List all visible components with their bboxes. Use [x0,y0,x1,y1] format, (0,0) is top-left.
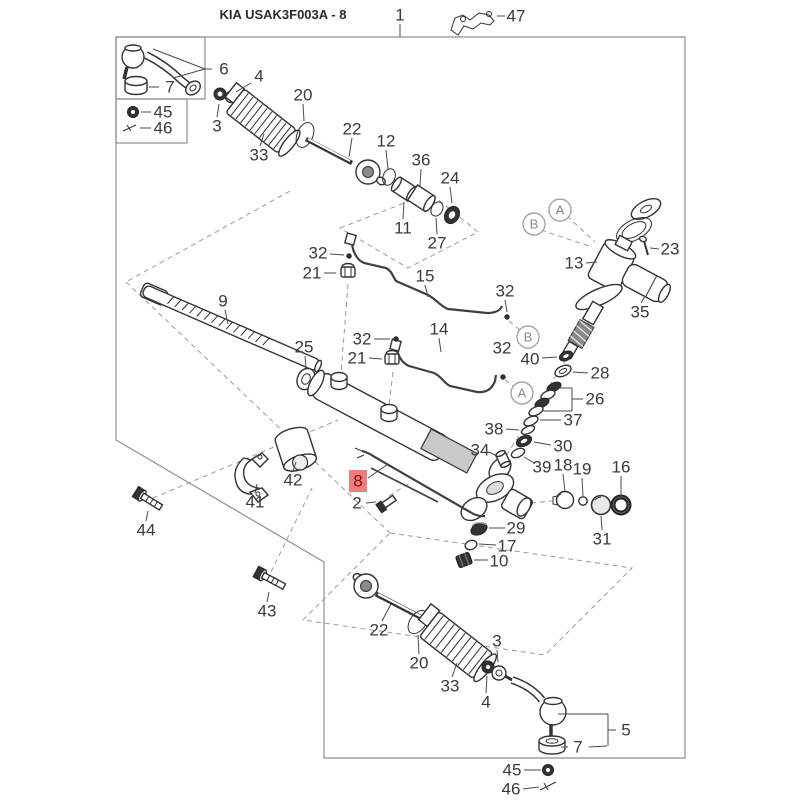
o-rings-26 [528,380,563,418]
callout-33-52[interactable]: 33 [441,677,460,696]
callout-layer: 1476745463420332212362411273221153214322… [137,6,680,799]
callout-46-58[interactable]: 46 [502,780,521,799]
callout-33-9[interactable]: 33 [250,146,269,165]
callout-7-3[interactable]: 7 [165,78,174,97]
callout-31-40[interactable]: 31 [593,530,612,549]
bolt-2 [376,494,397,513]
callout-23-26[interactable]: 23 [661,240,680,259]
callout-15-18[interactable]: 15 [416,267,435,286]
callout-13-25[interactable]: 13 [565,254,584,273]
castle-nut-upper-7 [125,77,147,95]
o-ring-20-upper [293,120,318,150]
parts-diagram-page: KIA USAK3F003A - 8 ABBA 1476745463420332… [0,0,800,800]
split-pin-46-lower [540,782,556,790]
callout-32-21[interactable]: 32 [353,330,372,349]
split-pin-46-upper [123,125,136,131]
housing-boss-2 [381,405,397,422]
castle-nut-lower-7 [539,736,565,754]
callout-14-20[interactable]: 14 [430,320,449,339]
callout-5-55[interactable]: 5 [621,721,630,740]
nut-45-lower [543,765,554,776]
callout-37-32[interactable]: 37 [564,411,583,430]
callout-11-14[interactable]: 11 [394,219,412,238]
svg-text:A: A [518,386,527,401]
ref-letter-B-1: B [523,213,545,235]
bolt-43 [253,566,287,592]
washer-3-upper [214,88,226,100]
callout-22-10[interactable]: 22 [343,120,362,139]
svg-text:B: B [524,330,533,345]
ring-39 [510,446,526,459]
callout-21-17[interactable]: 21 [303,264,322,283]
seal-30 [515,433,534,449]
callout-38-33[interactable]: 38 [485,420,504,439]
callout-16-39[interactable]: 16 [612,458,631,477]
solenoid-35 [620,262,674,306]
callout-20-8[interactable]: 20 [294,86,313,105]
nut-45-upper [128,107,139,118]
return-pipe-14 [390,337,505,392]
callout-29-41[interactable]: 29 [507,519,526,538]
callout-1-0[interactable]: 1 [395,6,404,25]
callout-32-19[interactable]: 32 [496,282,515,301]
callout-43-47[interactable]: 43 [258,602,277,621]
valve-assembly-13 [562,194,673,358]
callout-39-36[interactable]: 39 [533,458,552,477]
callout-20-51[interactable]: 20 [410,654,429,673]
ring-19 [579,497,587,505]
mount-bushing-42 [273,424,318,475]
callout-47-1[interactable]: 47 [507,7,526,26]
callout-25-24[interactable]: 25 [295,338,314,357]
steering-gear-housing [305,368,534,525]
callout-46-5[interactable]: 46 [154,119,173,138]
exploded-parts-diagram: KIA USAK3F003A - 8 ABBA 1476745463420332… [0,0,800,800]
callout-12-11[interactable]: 12 [377,132,396,151]
pipe-fitting-21b [385,351,399,365]
ref-letter-A-3: A [511,382,533,404]
bearing-24 [441,204,462,227]
callout-34-35[interactable]: 34 [471,441,490,460]
cap-29 [469,520,489,537]
callout-42-44[interactable]: 42 [284,471,303,490]
callout-8-48[interactable]: 8 [353,472,362,491]
housing-boss-1 [331,373,347,390]
callout-6-2[interactable]: 6 [219,60,228,79]
ring-38 [520,424,536,436]
rack-bar-9 [139,282,323,373]
callout-35-27[interactable]: 35 [631,303,650,322]
inner-tie-rod-lower-22 [352,572,426,620]
callout-24-13[interactable]: 24 [441,169,460,188]
callout-28-30[interactable]: 28 [591,364,610,383]
callout-44-46[interactable]: 44 [137,521,156,540]
yoke-31 [592,496,611,515]
callout-32-16[interactable]: 32 [309,244,328,263]
screw-23 [639,235,648,255]
callout-32-28[interactable]: 32 [493,339,512,358]
callout-36-12[interactable]: 36 [412,151,431,170]
callout-21-22[interactable]: 21 [348,349,367,368]
mounting-bracket-47 [451,12,494,36]
callout-4-54[interactable]: 4 [481,693,490,712]
ring-28 [553,363,573,379]
callout-18-37[interactable]: 18 [554,456,573,475]
callout-9-23[interactable]: 9 [218,292,227,311]
callout-22-50[interactable]: 22 [370,621,389,640]
diagram-title: KIA USAK3F003A - 8 [220,7,347,22]
inner-tie-rod-upper-22 [306,139,387,186]
svg-text:B: B [530,217,539,232]
washer-3-lower [492,666,506,680]
callout-26-31[interactable]: 26 [586,390,605,409]
yoke-parts-row [553,492,629,515]
callout-27-15[interactable]: 27 [428,234,447,253]
callout-3-53[interactable]: 3 [492,632,501,651]
callout-4-7[interactable]: 4 [254,67,263,86]
snap-ring-16 [613,497,629,513]
callout-45-57[interactable]: 45 [503,761,522,780]
nut-10 [455,552,472,568]
ring-17 [464,539,478,552]
tie-rod-end-lower [505,676,566,737]
callout-2-49[interactable]: 2 [352,494,361,513]
callout-40-29[interactable]: 40 [521,350,540,369]
pipe-fitting-21a [341,264,355,278]
svg-text:A: A [556,203,565,218]
ref-letter-B-2: B [517,326,539,348]
callout-41-45[interactable]: 41 [246,493,265,512]
bolt-44 [132,486,164,512]
callout-30-34[interactable]: 30 [554,437,573,456]
callout-10-43[interactable]: 10 [490,552,509,571]
ref-letter-A-0: A [549,199,571,221]
plug-18 [553,492,574,509]
callout-19-38[interactable]: 19 [573,460,592,479]
callout-7-56[interactable]: 7 [573,738,582,757]
callout-3-6[interactable]: 3 [212,117,221,136]
